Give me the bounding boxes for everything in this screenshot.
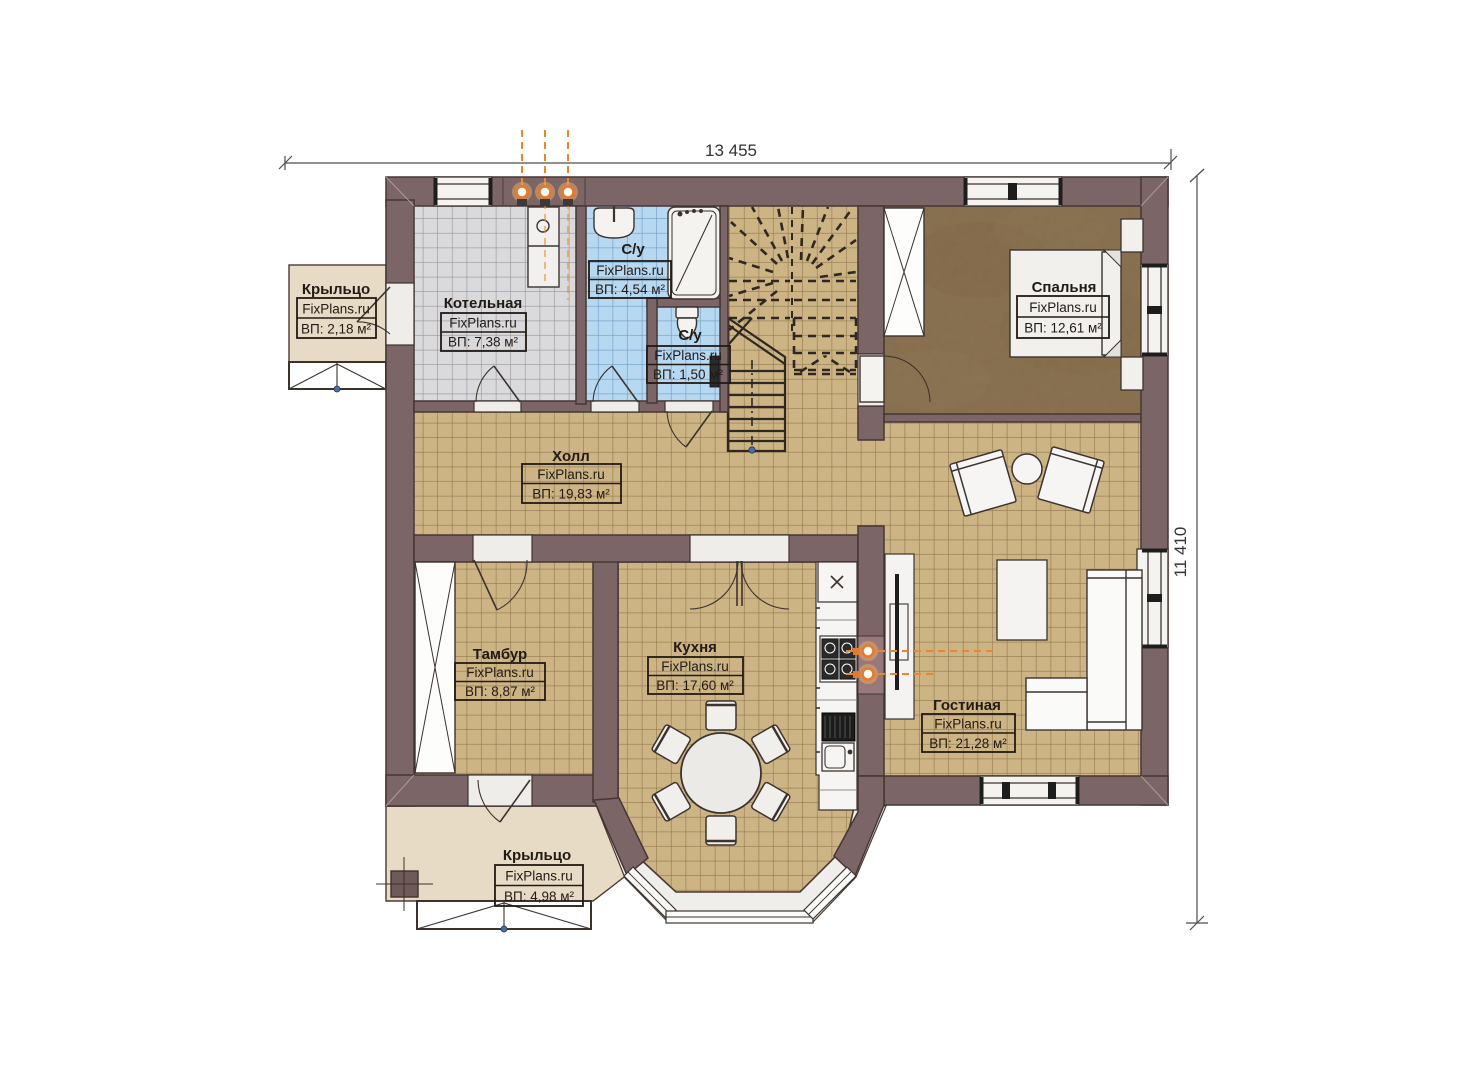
svg-text:FixPlans.ru: FixPlans.ru bbox=[537, 467, 605, 482]
svg-text:FixPlans.ru: FixPlans.ru bbox=[505, 869, 573, 884]
svg-text:11 410: 11 410 bbox=[1171, 527, 1190, 578]
svg-text:FixPlans.ru: FixPlans.ru bbox=[1029, 300, 1097, 315]
svg-text:FixPlans.ru: FixPlans.ru bbox=[654, 348, 722, 363]
svg-text:FixPlans.ru: FixPlans.ru bbox=[466, 665, 534, 680]
svg-text:FixPlans.ru: FixPlans.ru bbox=[302, 302, 370, 317]
svg-text:Кухня: Кухня bbox=[673, 639, 717, 656]
svg-text:Тамбур: Тамбур bbox=[473, 646, 527, 663]
svg-text:ВП: 1,50 м²: ВП: 1,50 м² bbox=[653, 367, 724, 382]
svg-text:ВП: 7,38 м²: ВП: 7,38 м² bbox=[448, 335, 519, 350]
svg-text:FixPlans.ru: FixPlans.ru bbox=[934, 717, 1002, 732]
svg-text:Крыльцо: Крыльцо bbox=[503, 847, 571, 864]
svg-text:FixPlans.ru: FixPlans.ru bbox=[661, 659, 729, 674]
svg-text:ВП: 4,54 м²: ВП: 4,54 м² bbox=[595, 282, 666, 297]
svg-text:Крыльцо: Крыльцо bbox=[302, 281, 370, 298]
svg-text:FixPlans.ru: FixPlans.ru bbox=[449, 316, 517, 331]
svg-text:Котельная: Котельная bbox=[444, 295, 523, 312]
svg-text:ВП: 2,18 м²: ВП: 2,18 м² bbox=[301, 322, 372, 337]
svg-text:ВП: 17,60 м²: ВП: 17,60 м² bbox=[656, 678, 734, 693]
svg-text:ВП: 4,98 м²: ВП: 4,98 м² bbox=[504, 889, 575, 904]
svg-text:13 455: 13 455 bbox=[705, 141, 757, 160]
svg-text:Холл: Холл bbox=[552, 448, 590, 465]
svg-text:ВП: 8,87 м²: ВП: 8,87 м² bbox=[465, 684, 536, 699]
svg-text:Спальня: Спальня bbox=[1032, 279, 1097, 296]
svg-text:Гостиная: Гостиная bbox=[933, 697, 1001, 714]
svg-text:ВП: 12,61 м²: ВП: 12,61 м² bbox=[1024, 321, 1102, 336]
svg-text:FixPlans.ru: FixPlans.ru bbox=[596, 263, 664, 278]
svg-text:С/у: С/у bbox=[678, 327, 702, 344]
svg-text:С/у: С/у bbox=[621, 241, 645, 258]
svg-text:ВП: 21,28 м²: ВП: 21,28 м² bbox=[929, 736, 1007, 751]
svg-text:ВП: 19,83 м²: ВП: 19,83 м² bbox=[532, 487, 610, 502]
